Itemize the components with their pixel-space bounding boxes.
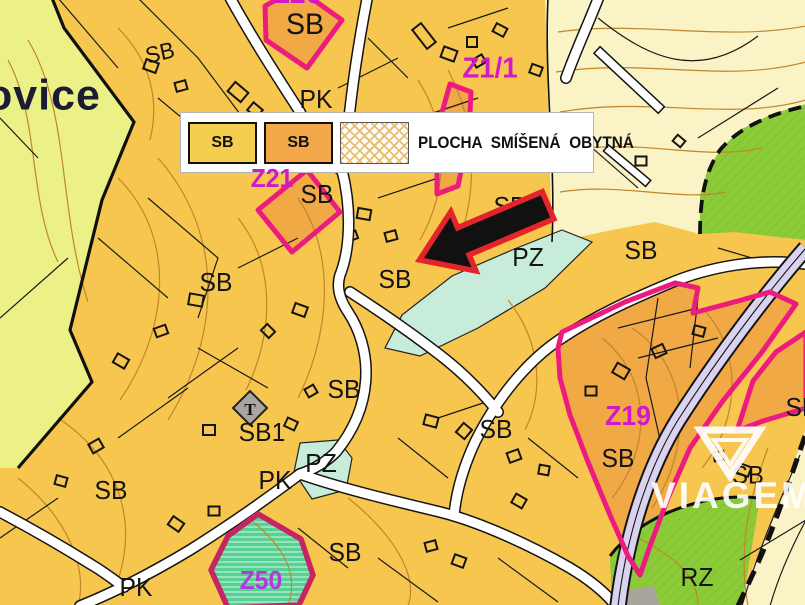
zoning-map[interactable]: T SB SB PLOCHA SMÍŠENÁ OBYTNÁ ovice SB Z… xyxy=(0,0,805,605)
legend-swatch-label: SB xyxy=(211,134,233,152)
zone-label-pz: PZ xyxy=(512,244,544,270)
zone-label-rz: RZ xyxy=(681,564,714,590)
dev-zone-label-z1-1: Z1/1 xyxy=(462,55,517,84)
zone-label-pz: PZ xyxy=(305,450,337,476)
legend-title: PLOCHA SMÍŠENÁ OBYTNÁ xyxy=(418,133,634,153)
zone-label-pk: PK xyxy=(120,574,153,600)
place-name: ovice xyxy=(0,75,101,118)
zone-label-sb-clipped: SB xyxy=(786,394,805,420)
zone-label-sb: SB xyxy=(329,539,362,565)
zone-label-sb1: SB1 xyxy=(239,419,286,445)
zone-label-sb: SB xyxy=(95,477,128,503)
dev-zone-label-z21: Z21 xyxy=(251,165,294,191)
zone-label-sb: SB xyxy=(494,193,527,219)
zone-label-pk: PK xyxy=(259,467,292,493)
zone-label-sb: SB xyxy=(480,416,513,442)
dev-zone-label-z19: Z19 xyxy=(605,402,651,430)
dev-zone-label-z50: Z50 xyxy=(240,567,283,593)
legend-swatch-sb-yellow: SB xyxy=(188,122,257,164)
zone-label-pk: PK xyxy=(300,86,333,112)
zone-label-sb: SB xyxy=(200,269,233,295)
zone-label-sb: SB xyxy=(602,445,635,471)
zone-label-sb: SB xyxy=(286,10,324,40)
legend-swatch-sb-orange: SB xyxy=(264,122,333,164)
zone-label-sb: SB xyxy=(379,266,412,292)
viagem-watermark: VIAGEM xyxy=(651,475,805,517)
legend-swatch-label: SB xyxy=(287,134,309,152)
zone-label-sb: SB xyxy=(328,376,361,402)
legend-swatch-hatched xyxy=(340,122,409,164)
zone-label-sb: SB xyxy=(625,237,658,263)
zone-label-sb: SB xyxy=(301,181,334,207)
legend: SB SB PLOCHA SMÍŠENÁ OBYTNÁ xyxy=(180,112,594,173)
